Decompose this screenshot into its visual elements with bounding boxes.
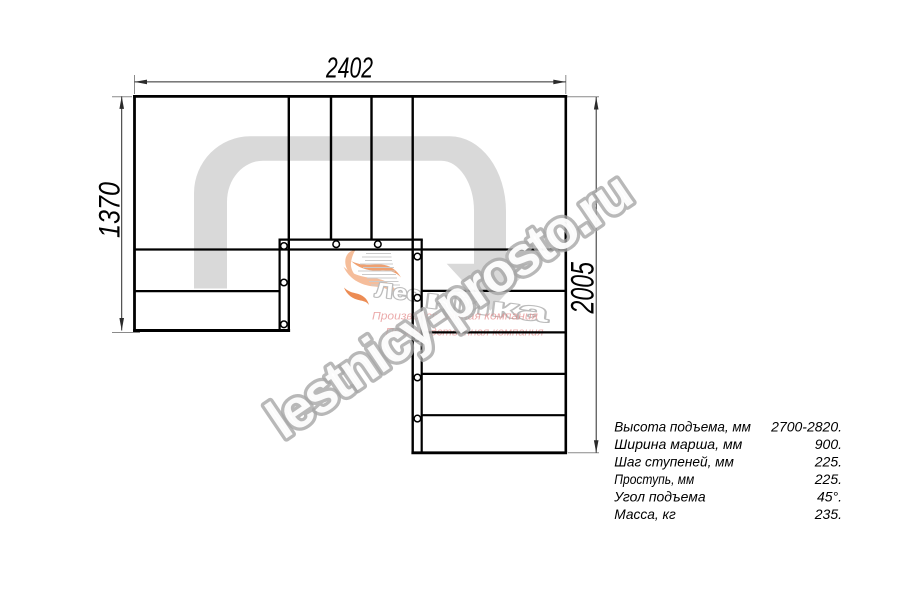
svg-text:Ширина марша, мм: Ширина марша, мм xyxy=(614,436,742,452)
svg-text:2700-2820.: 2700-2820. xyxy=(770,418,842,434)
svg-text:900.: 900. xyxy=(815,436,842,452)
svg-text:Высота подъема, мм: Высота подъема, мм xyxy=(614,418,751,434)
svg-text:Шаг ступеней, мм: Шаг ступеней, мм xyxy=(614,454,734,470)
svg-text:1370: 1370 xyxy=(94,182,127,238)
svg-text:Проступь, мм: Проступь, мм xyxy=(614,471,694,487)
svg-text:2005: 2005 xyxy=(565,262,601,314)
svg-text:2402: 2402 xyxy=(325,53,373,85)
svg-text:45°.: 45°. xyxy=(817,489,842,505)
svg-text:235.: 235. xyxy=(814,506,842,522)
svg-text:Масса, кг: Масса, кг xyxy=(614,506,676,522)
svg-text:Угол подъема: Угол подъема xyxy=(613,489,706,505)
svg-text:225.: 225. xyxy=(814,471,842,487)
svg-text:225.: 225. xyxy=(814,454,842,470)
